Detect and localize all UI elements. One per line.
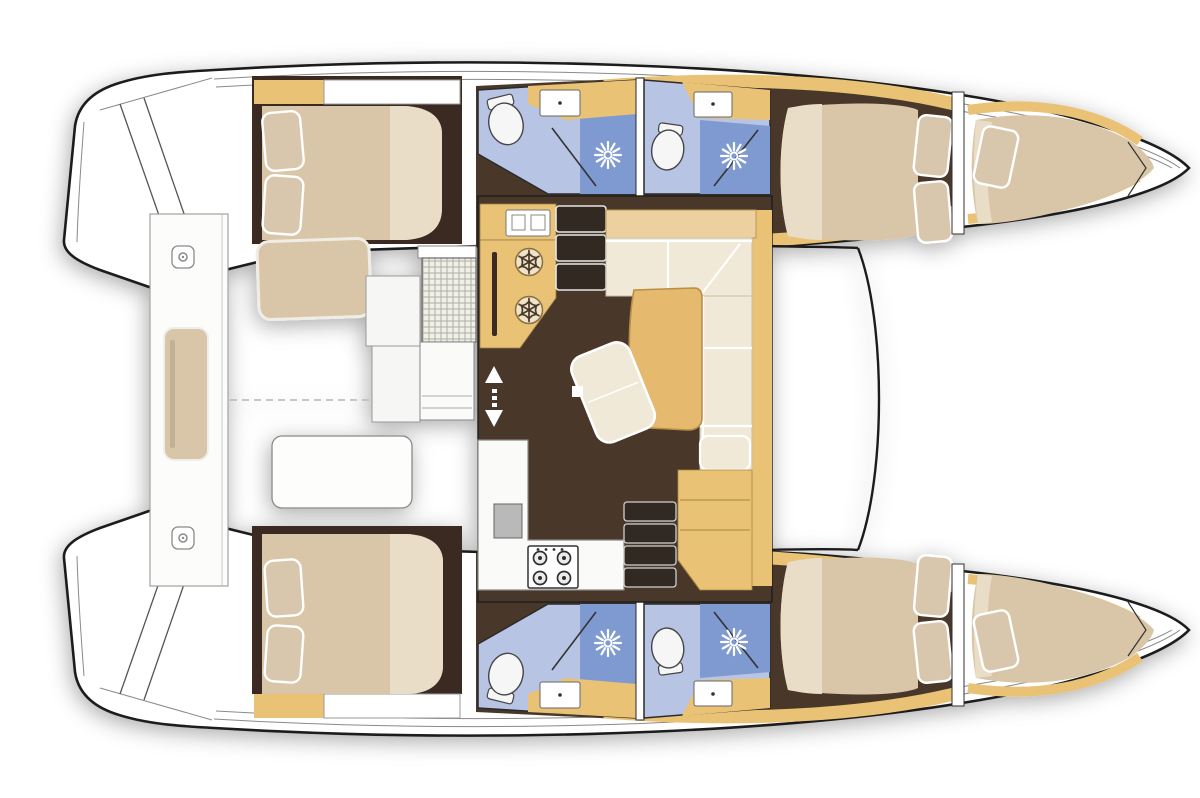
floorplan-stage	[0, 0, 1200, 798]
sofa-top-seats	[606, 238, 752, 296]
top-companionway-stairs	[556, 206, 606, 290]
cockpit-seat-bottom	[272, 436, 412, 508]
cockpit-seat-top	[257, 238, 372, 320]
cabinet-handle	[492, 252, 497, 336]
table-top-edge	[418, 246, 476, 258]
bridgedeck-front-edge	[766, 246, 879, 550]
woven-table	[422, 258, 476, 342]
sofa-shelf	[606, 210, 756, 238]
bed-sheet	[390, 106, 442, 240]
table-leg-mark	[572, 386, 583, 397]
step	[366, 276, 420, 346]
locker	[324, 80, 460, 104]
shelf	[254, 694, 324, 718]
catamaran-floorplan	[0, 0, 1200, 798]
boat	[64, 62, 1189, 735]
cockpit-table-unit	[366, 246, 476, 422]
locker	[324, 694, 460, 718]
oven	[494, 504, 522, 538]
bed-sheet	[390, 534, 443, 694]
galley-sink	[506, 210, 550, 236]
side-cabinet	[750, 210, 772, 586]
shelf	[254, 80, 324, 104]
bottom-aft-cabin	[252, 526, 462, 718]
side-bench	[150, 214, 228, 586]
top-aft-cabin	[252, 76, 462, 244]
stove	[528, 546, 578, 588]
saloon	[478, 196, 772, 602]
seat-cushion	[700, 436, 750, 470]
step	[372, 346, 420, 422]
